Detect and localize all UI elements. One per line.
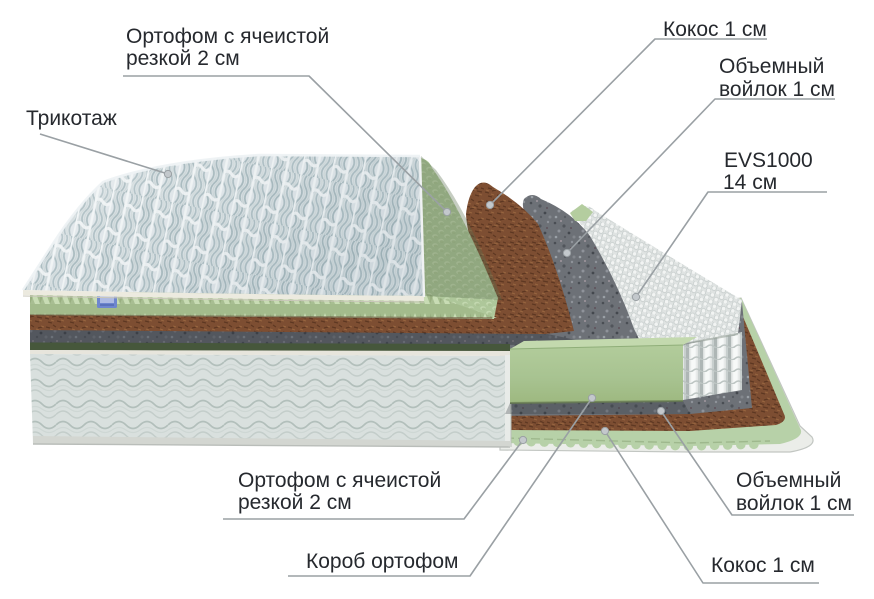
svg-text:Кокос 1 см: Кокос 1 см [663, 18, 767, 41]
svg-text:резкой 2 см: резкой 2 см [126, 47, 240, 70]
svg-text:EVS1000: EVS1000 [724, 149, 813, 172]
svg-text:Объемный: Объемный [719, 55, 824, 78]
svg-text:Трикотаж: Трикотаж [26, 107, 117, 130]
svg-text:войлок 1 см: войлок 1 см [719, 78, 835, 101]
svg-text:Ортофом с ячеистой: Ортофом с ячеистой [126, 25, 329, 48]
svg-text:Кокос 1 см: Кокос 1 см [711, 554, 815, 577]
svg-text:резкой 2 см: резкой 2 см [238, 491, 352, 514]
svg-text:Ортофом с ячеистой: Ортофом с ячеистой [238, 469, 441, 492]
svg-text:войлок 1 см: войлок 1 см [736, 492, 852, 515]
svg-text:Объемный: Объемный [736, 469, 841, 492]
svg-text:Короб ортофом: Короб ортофом [306, 550, 459, 573]
svg-text:14 см: 14 см [723, 171, 777, 194]
